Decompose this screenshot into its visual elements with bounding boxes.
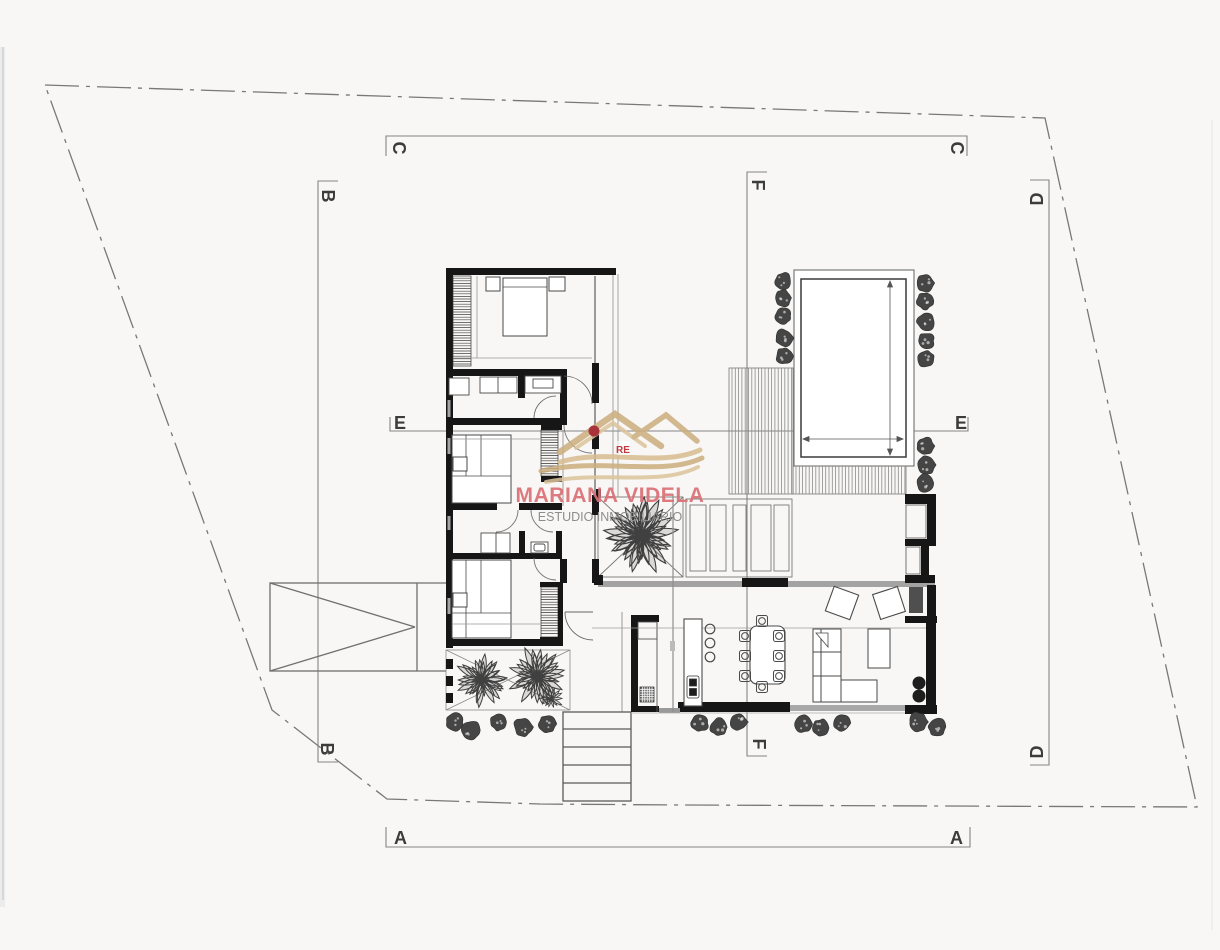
svg-text:D: D bbox=[1027, 746, 1047, 759]
svg-text:C: C bbox=[389, 142, 409, 155]
svg-text:A: A bbox=[950, 828, 963, 848]
svg-text:MARIANA VIDELA: MARIANA VIDELA bbox=[516, 484, 705, 507]
svg-text:F: F bbox=[748, 180, 768, 191]
svg-text:C: C bbox=[947, 142, 967, 155]
svg-text:E: E bbox=[955, 413, 967, 433]
svg-text:ESTUDIO INMOBILIARIO: ESTUDIO INMOBILIARIO bbox=[538, 510, 683, 524]
svg-text:B: B bbox=[318, 190, 338, 203]
svg-text:D: D bbox=[1027, 193, 1047, 206]
svg-text:F: F bbox=[749, 739, 769, 750]
svg-text:RE: RE bbox=[616, 445, 630, 456]
svg-text:B: B bbox=[317, 743, 337, 756]
svg-text:A: A bbox=[394, 828, 407, 848]
svg-text:E: E bbox=[394, 413, 406, 433]
